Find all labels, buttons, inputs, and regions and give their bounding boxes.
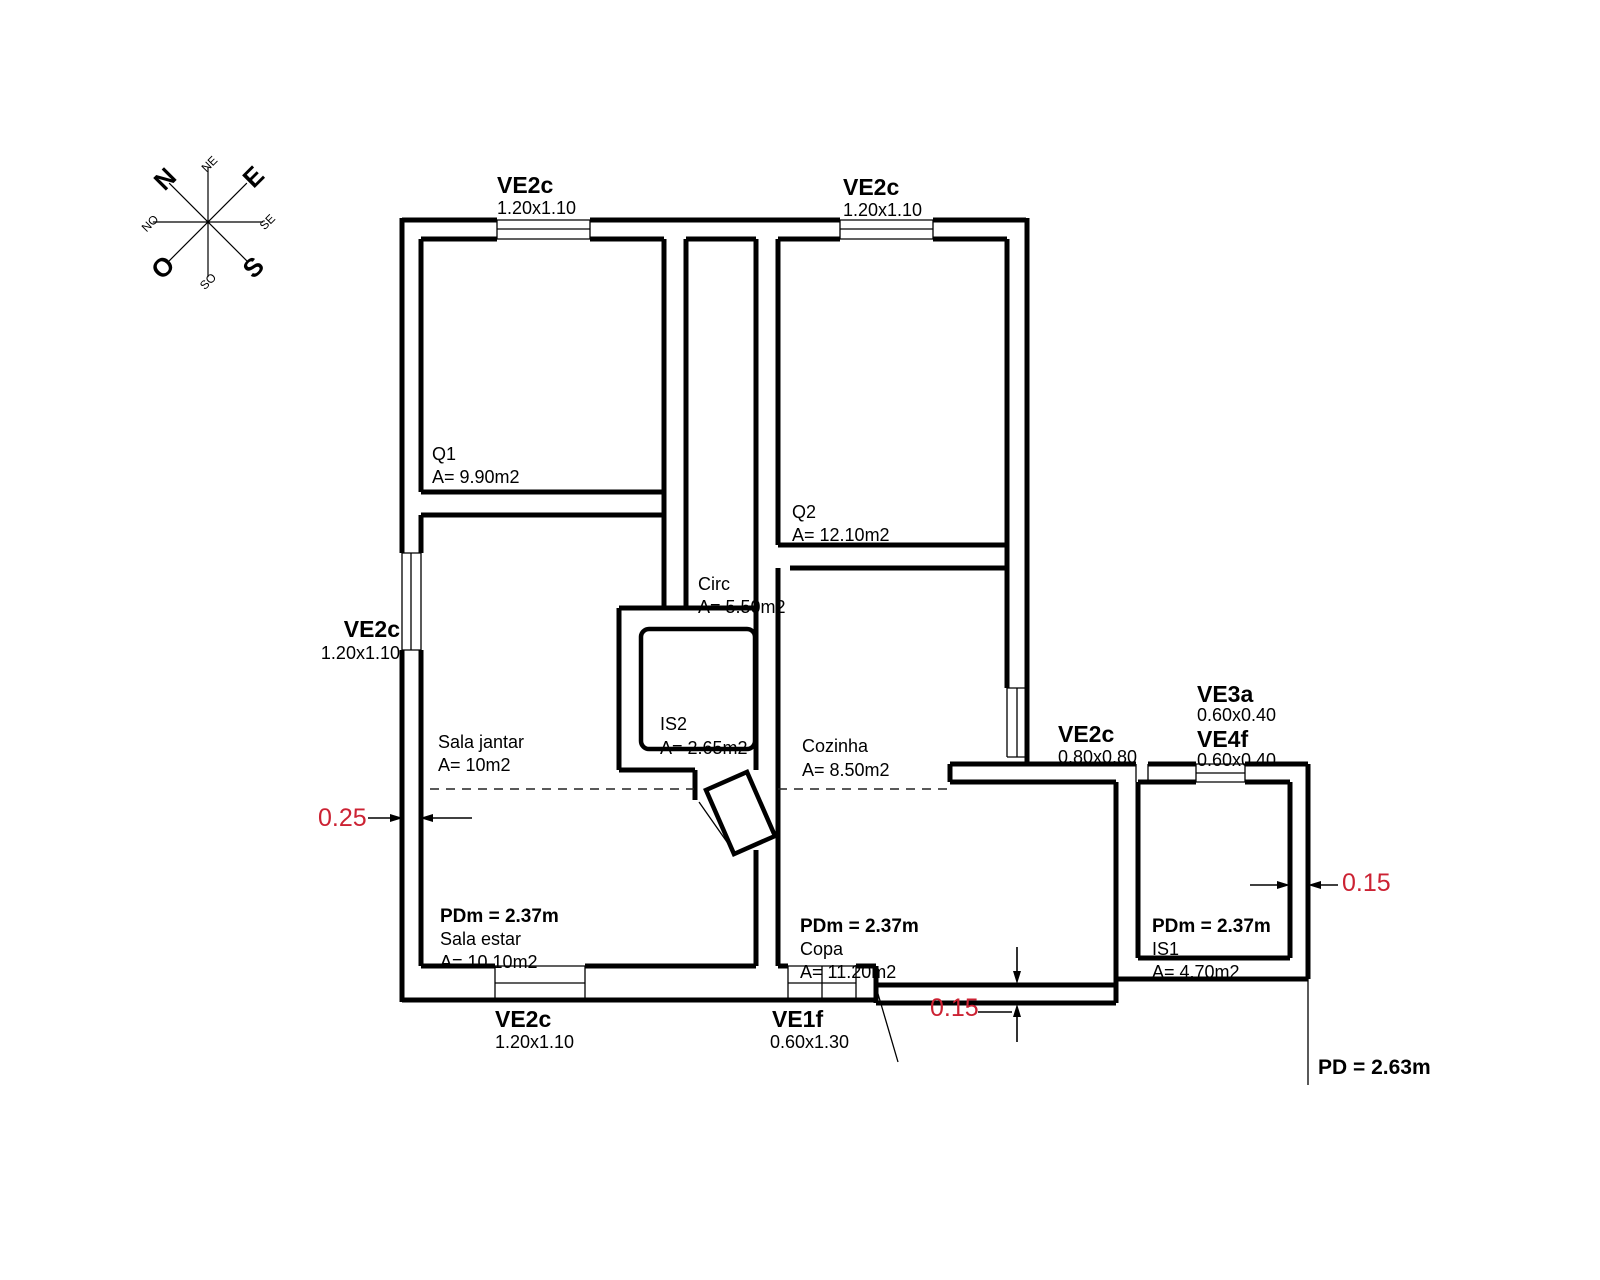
window-label-ve2c-bottom: VE2c — [495, 1006, 551, 1033]
room-label-sala-estar-pdm: PDm = 2.37m — [440, 906, 559, 928]
window-label-ve2c-right: VE2c — [1058, 721, 1114, 748]
room-label-copa-area: A= 11.20m2 — [800, 962, 896, 982]
room-label-is1-name: IS1 — [1152, 939, 1179, 959]
room-label-q2-area: A= 12.10m2 — [792, 525, 890, 545]
room-label-cozinha-name: Cozinha — [802, 736, 868, 756]
window-label-ve2c-top-right: VE2c — [843, 174, 899, 201]
walls — [402, 218, 1308, 1003]
room-label-q1-area: A= 9.90m2 — [432, 467, 520, 487]
compass-ne: NE — [199, 153, 221, 175]
room-label-is1-area: A= 4.70m2 — [1152, 962, 1240, 982]
dimension-wall-right: 0.15 — [1342, 869, 1391, 898]
room-label-sala-jantar-name: Sala jantar — [438, 732, 524, 752]
dimension-wall-left: 0.25 — [318, 804, 367, 833]
room-label-cozinha-area: A= 8.50m2 — [802, 760, 890, 780]
window-size-ve2c-top-left: 1.20x1.10 — [497, 198, 576, 219]
window-label-ve2c-top-left: VE2c — [497, 172, 553, 199]
dimension-wall-bottom: 0.15 — [930, 994, 979, 1023]
window-size-ve4f: 0.60x0.40 — [1197, 750, 1276, 771]
room-label-is1-pdm: PDm = 2.37m — [1152, 916, 1271, 938]
room-is2-inner-outline — [641, 629, 755, 749]
window-size-ve3a: 0.60x0.40 — [1197, 705, 1276, 726]
room-label-q2-name: Q2 — [792, 502, 816, 522]
room-label-sala-estar-area: A= 10.10m2 — [440, 952, 538, 972]
window-label-ve1f: VE1f — [772, 1006, 823, 1033]
window-size-ve2c-bottom: 1.20x1.10 — [495, 1032, 574, 1053]
room-label-circ-area: A= 5.50m2 — [698, 597, 786, 617]
window-label-ve3a: VE3a — [1197, 681, 1253, 708]
room-label-sala-estar-name: Sala estar — [440, 929, 521, 949]
room-label-sala-jantar-area: A= 10m2 — [438, 755, 511, 775]
compass-no: NO — [139, 212, 162, 235]
window-size-ve2c-left: 1.20x1.10 — [290, 643, 400, 664]
room-label-q1-name: Q1 — [432, 444, 456, 464]
compass-so: SO — [197, 270, 219, 292]
window-label-ve4f: VE4f — [1197, 726, 1248, 753]
window-size-ve1f: 0.60x1.30 — [770, 1032, 849, 1053]
room-label-circ-name: Circ — [698, 574, 730, 594]
window-size-ve2c-right: 0.80x0.80 — [1058, 747, 1137, 768]
floor-plan-canvas: N E S O NE SE SO NO — [0, 0, 1600, 1280]
compass-rose: N E S O NE SE SO NO — [102, 117, 315, 330]
window-label-ve2c-left: VE2c — [290, 616, 400, 643]
room-label-is2-area: A= 2.65m2 — [660, 738, 748, 758]
floor-plan-page: N E S O NE SE SO NO — [0, 0, 1600, 1280]
room-label-copa-pdm: PDm = 2.37m — [800, 916, 919, 938]
room-label-is2-name: IS2 — [660, 714, 687, 734]
door-leaf — [706, 772, 775, 854]
window-size-ve2c-top-right: 1.20x1.10 — [843, 200, 922, 221]
room-label-copa-name: Copa — [800, 939, 843, 959]
ceiling-height-note: PD = 2.63m — [1318, 1056, 1431, 1080]
compass-se: SE — [257, 211, 278, 232]
